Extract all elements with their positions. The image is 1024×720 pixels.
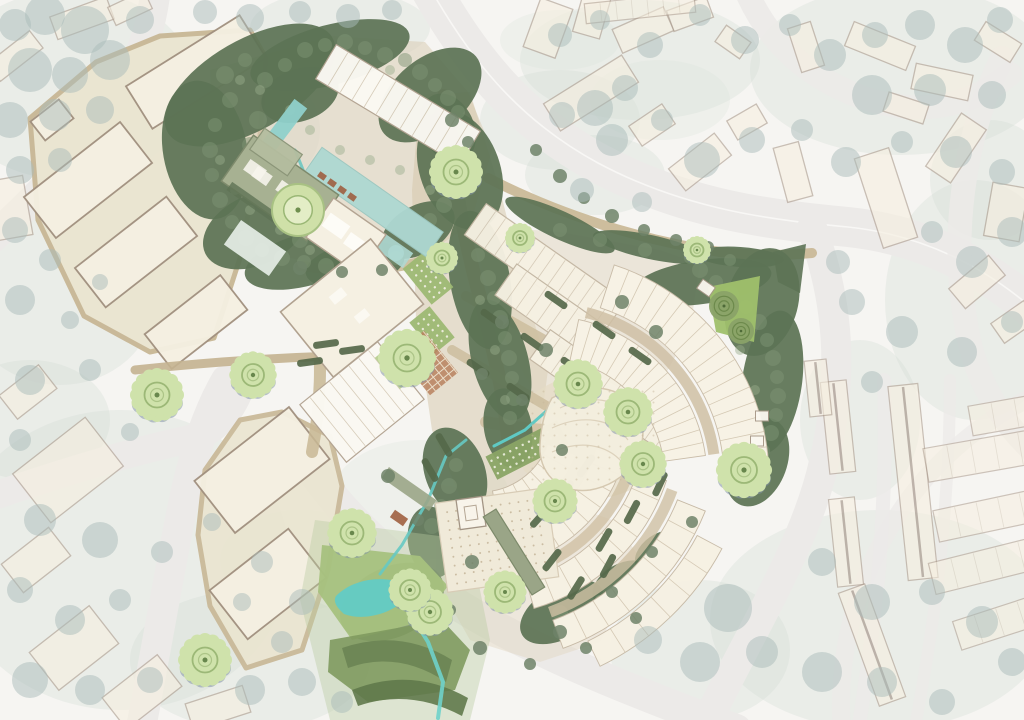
masterplan-image: Watercolour-style illustrated masterplan… <box>0 0 1024 720</box>
masterplan-svg <box>0 0 1024 720</box>
